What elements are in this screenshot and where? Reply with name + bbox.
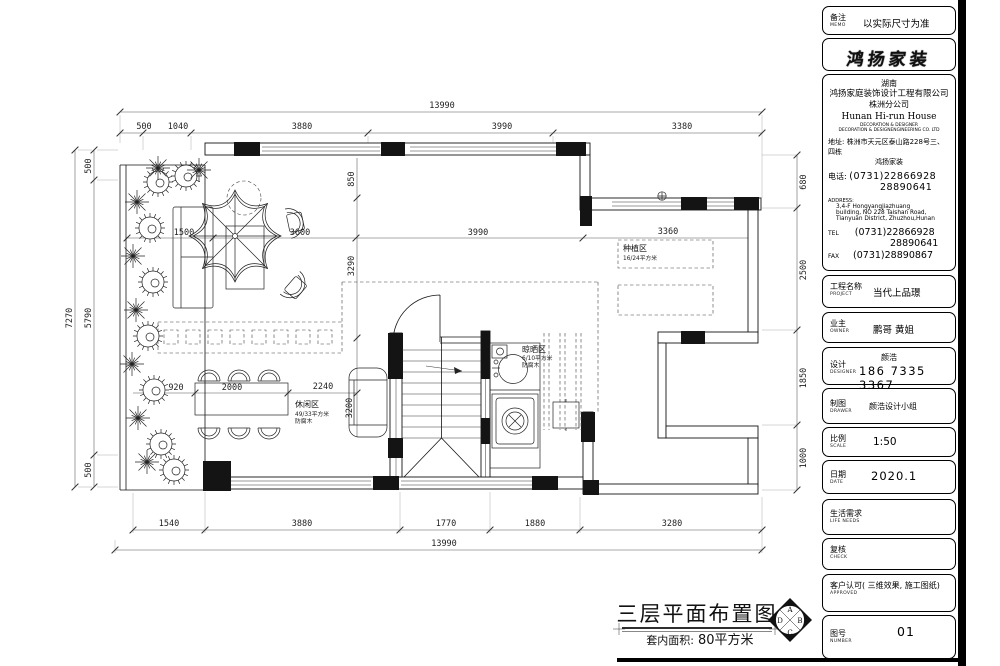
dim-right-2: 2500 — [799, 260, 809, 280]
dim-dining-2: 2000 — [222, 383, 242, 393]
date-label-en: DATE — [830, 481, 846, 486]
dim-dining-4: 3200 — [345, 398, 355, 418]
zone-planting-name: 种植区 — [623, 243, 647, 253]
shrub-plant-icon — [138, 267, 168, 297]
dim-bottom-3: 1770 — [436, 519, 456, 529]
drawer-label: 制图 — [830, 400, 852, 408]
tel-label: 电话: — [828, 172, 847, 181]
addr-value2: 鸿扬家装 — [828, 157, 950, 167]
dim-top-2: 1040 — [168, 122, 188, 132]
company-logo: 鸿扬家装 — [821, 45, 957, 70]
dining-chair — [198, 370, 220, 381]
approved-label: 客户认可( 三维效果, 施工图纸) — [830, 582, 949, 590]
area-value: 80平方米 — [698, 632, 754, 648]
dim-left-2: 5790 — [84, 308, 94, 328]
drawing-title: 三层平面布置图 套内面积: 80平方米 — [613, 602, 781, 648]
addr-value: 株洲市天元区泰山路228号三、四栋 — [828, 138, 944, 156]
fax-value: (0731)28890867 — [853, 250, 933, 261]
company-name-en: Hunan Hi-run House — [828, 112, 950, 123]
dim-bottom-5: 3280 — [662, 519, 682, 529]
dim-inner-v2: 3290 — [347, 256, 357, 276]
dim-inner-3: 3990 — [468, 228, 488, 238]
dim-bottom-1: 1540 — [159, 519, 179, 529]
sheet-border-bar — [958, 0, 966, 666]
owner-label-en: OWNER — [830, 330, 849, 335]
memo-label-en: MEMO — [830, 24, 846, 29]
scale-box: 比例 SCALE 1:50 — [822, 427, 956, 457]
drawer-value: 颜浩设计小组 — [869, 401, 917, 412]
star-plant-icon — [126, 406, 150, 430]
shrub-plant-icon — [159, 455, 189, 485]
drawer-label-en: DRAWER — [830, 410, 852, 415]
dim-top-1: 500 — [136, 122, 151, 132]
designer-label: 设计 — [830, 361, 856, 369]
plants-layer — [120, 156, 211, 485]
memo-value: 以实际尺寸为准 — [863, 16, 930, 30]
approved-label-en: APPROVED — [830, 592, 949, 597]
soap-dish — [492, 345, 507, 358]
staircase — [393, 295, 481, 477]
project-value: 当代上品璟 — [873, 285, 921, 299]
dim-inner-v1: 850 — [347, 171, 357, 186]
zone-planting-size: 16/24平方米 — [623, 254, 657, 262]
zone-drying-name: 晾晒区 — [522, 344, 546, 354]
designer-box: 设计 DESIGNER 颜浩 186 7335 3367 — [822, 347, 956, 385]
fax-label: FAX — [828, 253, 839, 260]
owner-label: 业主 — [830, 320, 849, 328]
drawing-sheet: 13990 500 1040 3880 3990 3380 1540 3880 … — [0, 0, 1000, 666]
patio-armchair — [280, 271, 311, 303]
dining-chair — [228, 370, 250, 381]
life-needs-box: 生活需求 LIFE NEEDS — [822, 499, 956, 535]
patio-table — [226, 226, 264, 289]
shrub-plant-icon — [133, 321, 163, 351]
shrub-plant-icon — [135, 213, 165, 243]
sheet-bottom-line — [617, 658, 966, 662]
compass-s: C — [787, 629, 792, 637]
memo-label: 备注 — [830, 14, 846, 22]
designer-label-en: DESIGNER — [830, 371, 856, 376]
dim-inner-4: 3360 — [658, 227, 678, 237]
number-label-en: NUMBER — [830, 640, 852, 645]
check-box: 复核 CHECK — [822, 538, 956, 570]
check-label: 复核 — [830, 546, 847, 554]
designer-name: 颜浩 — [881, 352, 897, 363]
date-value: 2020.1 — [871, 469, 917, 483]
tel-en-label: TEL — [828, 230, 839, 237]
floor-plan: 13990 500 1040 3880 3990 3380 1540 3880 … — [0, 0, 822, 666]
umbrella-canopy-dashed — [227, 181, 261, 215]
number-value: 01 — [897, 624, 915, 639]
date-label: 日期 — [830, 471, 846, 479]
dim-left-1: 500 — [84, 158, 94, 173]
date-box: 日期 DATE 2020.1 — [822, 460, 956, 494]
stair-direction-arrow — [454, 367, 462, 374]
logo-box: 鸿扬家装 — [822, 38, 956, 71]
star-plant-icon — [135, 450, 159, 474]
tel-en-value: (0731)22866928 — [855, 227, 935, 238]
dim-right-1: 680 — [799, 174, 809, 189]
zone-drying-note: 防腐木 — [522, 361, 540, 369]
owner-box: 业主 OWNER 鹏哥 黄姐 — [822, 312, 956, 343]
dim-bottom-total: 13990 — [431, 539, 457, 549]
dim-top-4: 3990 — [492, 122, 512, 132]
tel-value: (0731)22866928 — [849, 171, 936, 182]
scale-label-en: SCALE — [830, 445, 846, 450]
dim-left-total: 7270 — [65, 308, 75, 328]
dim-top-5: 3380 — [672, 122, 692, 132]
check-label-en: CHECK — [830, 556, 847, 561]
number-label: 图号 — [830, 630, 852, 638]
planting-bed — [618, 285, 713, 315]
company-branch: 株洲分公司 — [828, 100, 950, 110]
drying-table — [553, 399, 579, 431]
dim-top-total: 13990 — [429, 101, 455, 111]
approved-box: 客户认可( 三维效果, 施工图纸) APPROVED — [822, 574, 956, 612]
drawing-title-text: 三层平面布置图 — [617, 602, 778, 626]
owner-value: 鹏哥 黄姐 — [873, 322, 914, 336]
shrub-plant-icon — [139, 375, 169, 405]
drawer-box: 制图 DRAWER 颜浩设计小组 — [822, 388, 956, 424]
parasol-umbrella — [189, 190, 281, 289]
title-block: 备注 MEMO 以实际尺寸为准 鸿扬家装 湖南 鸿扬家庭装饰设计工程有限公司 株… — [822, 0, 958, 666]
zone-drying-size: 6/10平方米 — [522, 354, 553, 362]
project-box: 工程名称 PROJECT 当代上品璟 — [822, 275, 956, 308]
furniture-layer — [173, 190, 579, 439]
dining-chair — [258, 370, 280, 381]
star-plant-icon — [125, 190, 149, 214]
star-plant-icon — [187, 158, 211, 182]
dim-left-3: 500 — [84, 462, 94, 477]
memo-box: 备注 MEMO 以实际尺寸为准 — [822, 6, 956, 35]
dim-dining-3: 2240 — [313, 382, 333, 392]
life-needs-label-en: LIFE NEEDS — [830, 520, 862, 525]
walls-layer — [120, 142, 761, 495]
dim-dining-1: 920 — [168, 383, 183, 393]
company-sub-en2: DECORATION & DESIGNENGINEERING CO. LTD — [828, 128, 950, 133]
star-plant-icon — [121, 244, 145, 268]
washing-machine — [492, 394, 538, 448]
zone-leisure-name: 休闲区 — [295, 399, 319, 409]
project-label-en: PROJECT — [830, 293, 862, 298]
dim-bottom-4: 1880 — [525, 519, 545, 529]
dining-chair — [228, 428, 250, 439]
scale-label: 比例 — [830, 435, 846, 443]
dining-chair — [198, 428, 220, 439]
dim-right-4: 1000 — [799, 448, 809, 468]
area-label: 套内面积: — [646, 633, 694, 647]
compass-e: B — [797, 617, 802, 625]
company-box: 湖南 鸿扬家庭装饰设计工程有限公司 株洲分公司 Hunan Hi-run Hou… — [822, 74, 956, 271]
life-needs-label: 生活需求 — [830, 510, 862, 518]
dining-chair — [258, 428, 280, 439]
zone-leisure-size: 49/33平方米 — [295, 410, 329, 418]
scale-value: 1:50 — [873, 436, 897, 448]
company-name: 鸿扬家庭装饰设计工程有限公司 — [828, 89, 950, 100]
compass-w: D — [777, 617, 783, 625]
star-plant-icon — [120, 352, 144, 376]
star-plant-icon — [124, 298, 148, 322]
dining-set — [195, 370, 288, 439]
star-plant-icon — [146, 156, 170, 180]
tel-value2: 28890641 — [880, 182, 950, 193]
shrub-plant-icon — [146, 429, 176, 459]
tel-en-value2: 28890641 — [890, 238, 950, 249]
number-box: 图号 NUMBER 01 — [822, 615, 956, 659]
planter-row — [158, 322, 342, 353]
dim-right-3: 1850 — [799, 368, 809, 388]
dim-top-3: 3880 — [292, 122, 312, 132]
compass-n: A — [786, 606, 793, 614]
dim-inner-1: 1500 — [174, 228, 194, 238]
address-en3: Tianyuan District, Zhuzhou,Hunan — [836, 216, 950, 222]
project-label: 工程名称 — [830, 283, 862, 291]
zone-leisure-note: 防腐木 — [295, 417, 313, 425]
addr-label: 地址: — [828, 138, 844, 146]
company-region: 湖南 — [828, 79, 950, 89]
dim-bottom-2: 3880 — [292, 519, 312, 529]
